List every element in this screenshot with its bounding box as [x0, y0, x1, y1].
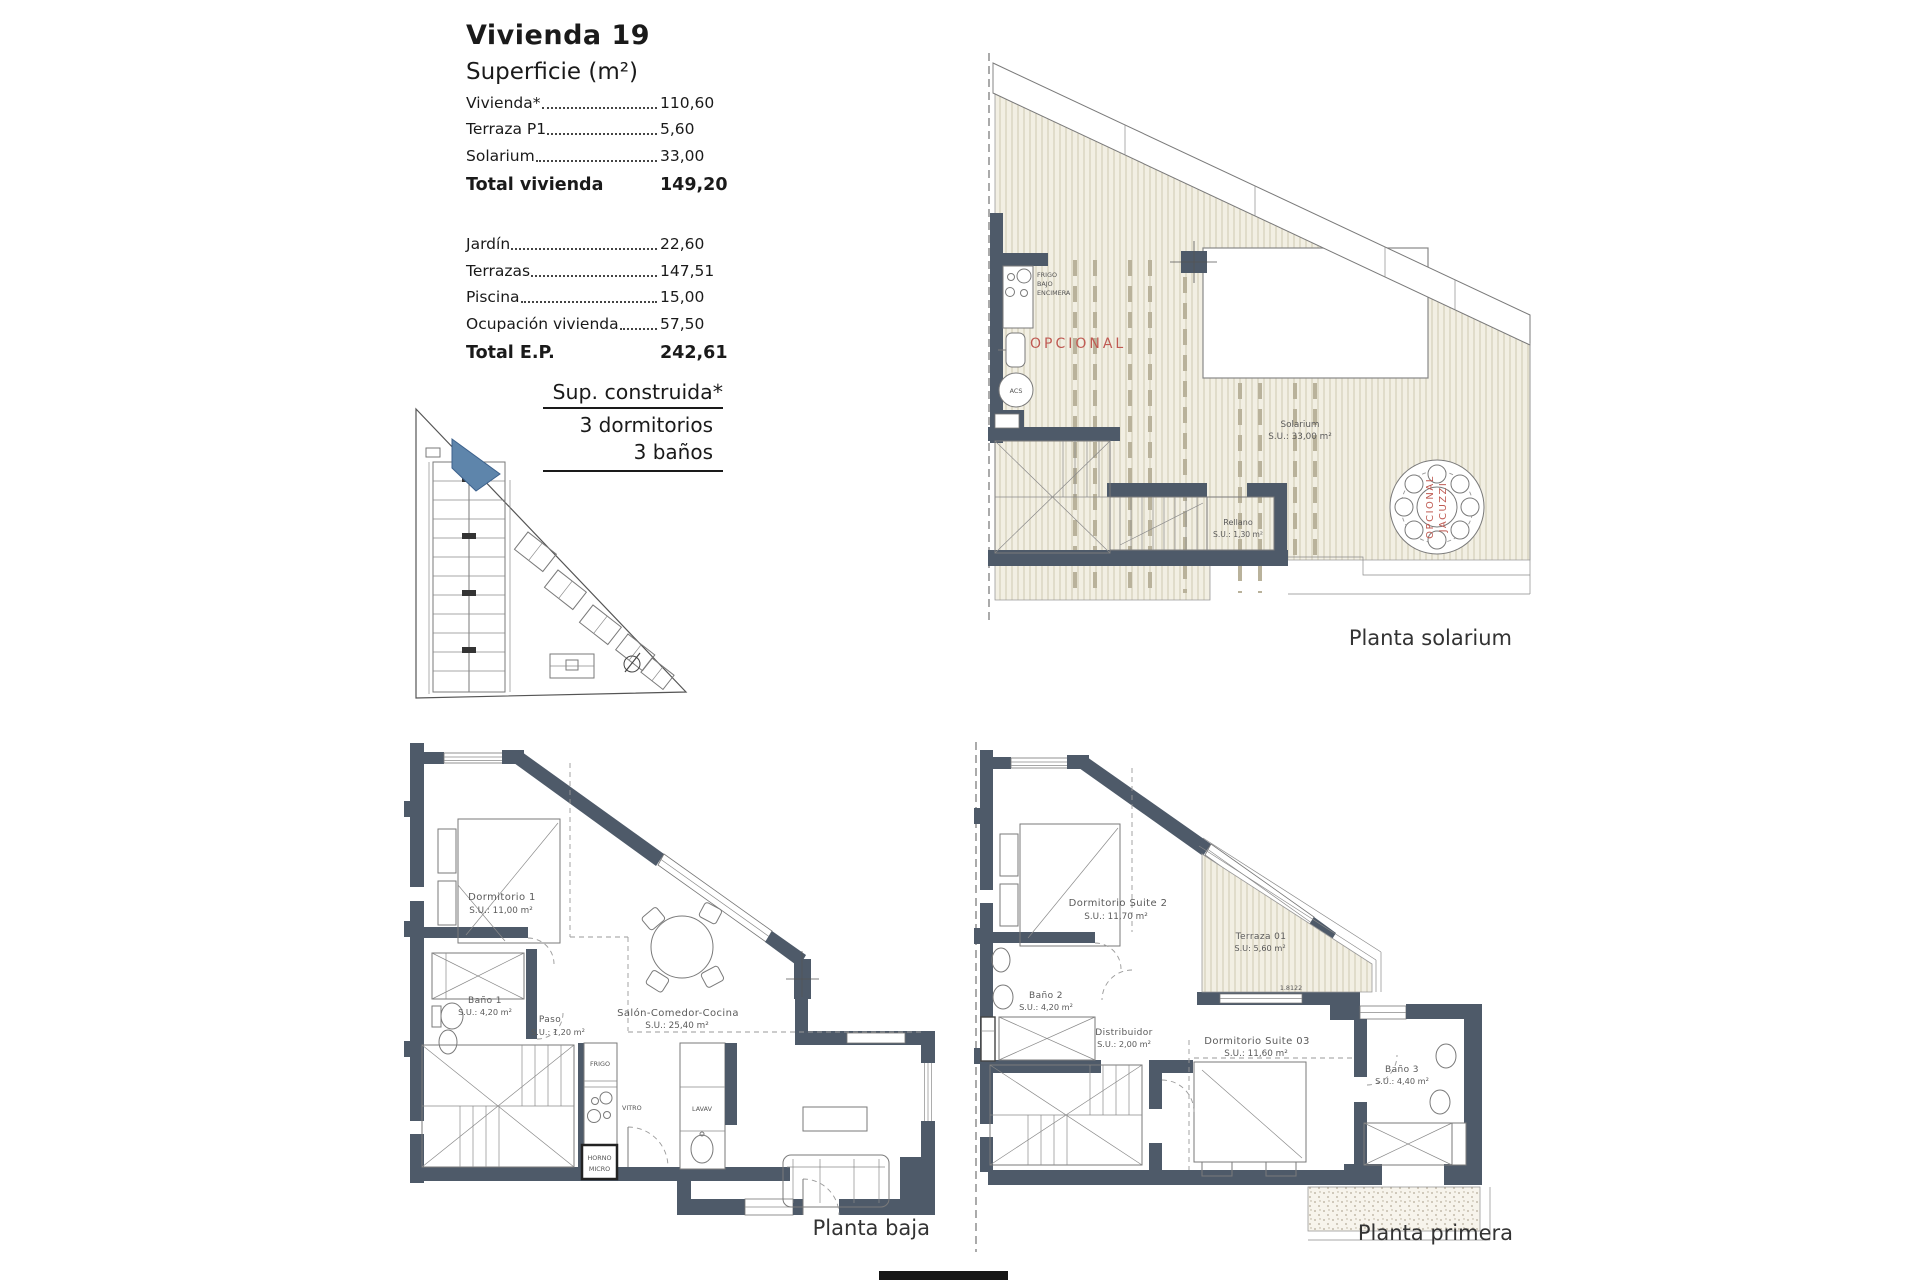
fridge-label: FRIGO	[590, 1060, 610, 1068]
terrace-hatch-area	[1202, 854, 1372, 992]
dot-leader	[511, 248, 657, 250]
table-row: Terrazas 147,51	[466, 262, 746, 280]
plan-caption: Planta primera	[1358, 1221, 1513, 1245]
room-area: S.U.: 1,30 m²	[1213, 530, 1263, 539]
dot-leader	[531, 275, 657, 277]
dimension-label: 1.8122	[1280, 984, 1302, 992]
room-area: S.U.: 2,00 m²	[1097, 1039, 1151, 1049]
counter-label: BAJO	[1037, 280, 1053, 288]
total-label: Total E.P.	[466, 343, 555, 363]
row-label: Terraza P1	[466, 120, 546, 138]
room-area: S.U.: 33,00 m²	[1268, 432, 1331, 442]
room-name: Terraza 01	[1235, 932, 1287, 942]
micro-label: MICRO	[589, 1165, 610, 1173]
staircase	[990, 1065, 1142, 1165]
row-label: Terrazas	[466, 262, 530, 280]
room-area: S.U.: 4,20 m²	[458, 1007, 512, 1017]
housing-row-block	[429, 462, 510, 694]
jacuzzi-icon: OPCIONAL JACUZZI	[1390, 460, 1484, 554]
room-area: S.U.: 11,00 m²	[469, 906, 532, 916]
page-footer-bar	[879, 1271, 1008, 1280]
row-value: 57,50	[660, 315, 746, 333]
surface-table: Vivienda 19 Superficie (m²) Vivienda* 11…	[466, 20, 746, 363]
bed-suite2	[1000, 824, 1120, 946]
room-name: Paso	[539, 1015, 561, 1025]
unit-title: Vivienda 19	[466, 20, 746, 51]
opcional-label: OPCIONAL	[1030, 336, 1126, 352]
room-name: Baño 1	[468, 996, 502, 1006]
total-value: 149,20	[660, 175, 746, 195]
table-row: Jardín 22,60	[466, 235, 746, 253]
row-label: Piscina	[466, 288, 520, 306]
room-name: Salón-Comedor-Cocina	[617, 1007, 739, 1019]
row-value: 5,60	[660, 120, 746, 138]
room-area: S.U.: 11,70 m²	[1084, 912, 1147, 922]
bed-dormitorio1	[438, 819, 560, 943]
hob-label: VITRO	[622, 1104, 642, 1112]
dining-table	[641, 902, 725, 993]
plan-caption: Planta solarium	[1349, 626, 1512, 650]
room-name: Dormitorio Suite 03	[1204, 1036, 1310, 1047]
row-label: Vivienda*	[466, 94, 541, 112]
room-area: S.U.: 1,20 m²	[531, 1027, 585, 1037]
staircase	[422, 1045, 574, 1167]
dot-leader	[620, 328, 657, 330]
room-name: Baño 3	[1385, 1065, 1419, 1075]
table-row: Piscina 15,00	[466, 288, 746, 306]
partition-dashed-lines	[570, 763, 921, 1032]
row-label: Ocupación vivienda	[466, 315, 619, 333]
dot-leader	[542, 107, 658, 109]
room-name: Distribuidor	[1095, 1028, 1153, 1038]
room-name: Solarium	[1280, 420, 1319, 430]
table-row: Vivienda* 110,60	[466, 94, 746, 112]
ground-floor-plan: FRIGO VITRO HORNO MICRO LAVAV	[402, 735, 935, 1250]
bathroom3-fixtures	[1364, 1044, 1466, 1165]
counter-label: ENCIMERA	[1037, 289, 1071, 297]
highlighted-unit-19	[452, 439, 500, 491]
plan-sheet: Vivienda 19 Superficie (m²) Vivienda* 11…	[0, 0, 1920, 1280]
room-area: S.U.: 4,40 m²	[1375, 1076, 1429, 1086]
detached-building	[550, 654, 594, 678]
surface-subtitle: Superficie (m²)	[466, 59, 746, 85]
table-total-row: Total E.P. 242,61	[466, 343, 746, 363]
acs-tank-icon: ACS	[999, 373, 1033, 407]
bed-suite03	[1194, 1062, 1306, 1176]
room-name: Dormitorio Suite 2	[1069, 898, 1168, 909]
row-value: 110,60	[660, 94, 746, 112]
table-total-row: Total vivienda 149,20	[466, 175, 746, 195]
north-compass-icon	[624, 653, 640, 672]
room-name: Baño 2	[1029, 991, 1063, 1001]
jacuzzi-label: JACUZZI	[1438, 482, 1449, 534]
dot-leader	[521, 301, 657, 303]
table-row: Terraza P1 5,60	[466, 120, 746, 138]
row-value: 33,00	[660, 147, 746, 165]
room-area: S.U.: 4,20 m²	[1019, 1002, 1073, 1012]
oven-label: HORNO	[587, 1154, 611, 1162]
plan-caption: Planta baja	[813, 1216, 930, 1240]
row-value: 15,00	[660, 288, 746, 306]
row-label: Jardín	[466, 235, 510, 253]
dot-leader	[536, 160, 657, 162]
room-area: S.U: 5,60 m²	[1234, 943, 1285, 953]
wall-niche	[990, 410, 1024, 432]
first-floor-plan: 1.8122	[972, 740, 1520, 1255]
kitchen-column: FRIGO VITRO HORNO MICRO	[578, 1043, 642, 1179]
total-value: 242,61	[660, 343, 746, 363]
counter-label: FRIGO	[1037, 271, 1057, 279]
row-label: Solarium	[466, 147, 535, 165]
room-name: Dormitorio 1	[468, 892, 536, 903]
oven-micro-box: HORNO MICRO	[582, 1145, 617, 1179]
room-area: S.U.: 25,40 m²	[645, 1021, 708, 1031]
total-label: Total vivienda	[466, 175, 603, 195]
island-counter: LAVAV	[680, 1043, 737, 1169]
table-row: Ocupación vivienda 57,50	[466, 315, 746, 333]
room-name: Rellano	[1223, 518, 1253, 527]
site-plan	[400, 402, 692, 702]
spacer	[466, 195, 746, 227]
dot-leader	[547, 133, 657, 135]
acs-label: ACS	[1010, 387, 1023, 395]
table-row: Solarium 33,00	[466, 147, 746, 165]
room-area: S.U.: 11,60 m²	[1224, 1049, 1287, 1059]
jacuzzi-label: OPCIONAL	[1425, 475, 1436, 539]
dishwasher-label: LAVAV	[692, 1105, 713, 1113]
coffee-table	[803, 1107, 867, 1131]
row-value: 22,60	[660, 235, 746, 253]
solarium-plan: FRIGO BAJO ENCIMERA OPCIONAL ACS	[985, 45, 1535, 660]
row-value: 147,51	[660, 262, 746, 280]
